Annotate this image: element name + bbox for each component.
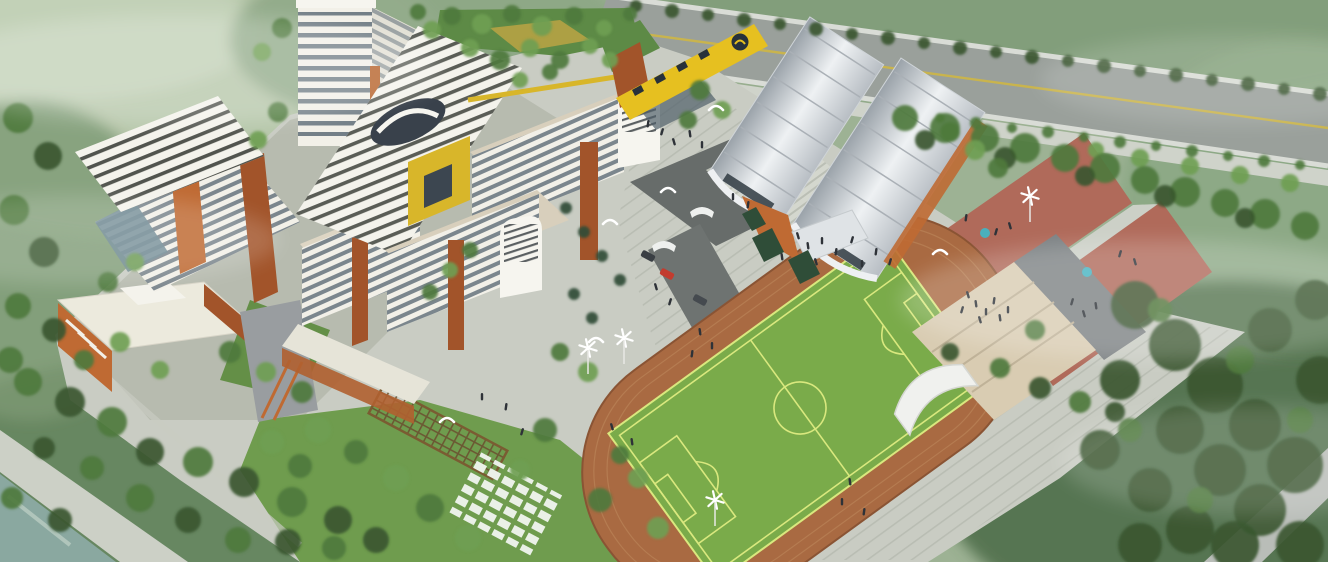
tree bbox=[1211, 189, 1239, 217]
tree bbox=[1186, 145, 1198, 157]
tree bbox=[1258, 155, 1270, 167]
fountain bbox=[980, 228, 990, 238]
tree bbox=[586, 312, 598, 324]
tree bbox=[881, 31, 895, 45]
tree bbox=[510, 460, 530, 480]
tree bbox=[568, 288, 580, 300]
tree bbox=[521, 39, 539, 57]
tree bbox=[1231, 166, 1249, 184]
person-figure bbox=[481, 393, 483, 401]
tree bbox=[14, 368, 42, 396]
tree bbox=[461, 39, 479, 57]
tree bbox=[690, 80, 710, 100]
tree bbox=[582, 38, 598, 54]
tree bbox=[1, 487, 23, 509]
tree bbox=[702, 9, 714, 21]
tree bbox=[940, 122, 960, 142]
tree bbox=[1281, 174, 1299, 192]
tree bbox=[1291, 212, 1319, 240]
tree bbox=[1075, 166, 1095, 186]
tree bbox=[410, 4, 426, 20]
tree bbox=[55, 387, 85, 417]
tree bbox=[275, 529, 301, 555]
gate-logo bbox=[732, 34, 749, 51]
tree bbox=[988, 158, 1008, 178]
tree bbox=[33, 437, 55, 459]
tree bbox=[512, 72, 528, 88]
tree bbox=[774, 18, 786, 30]
tower-parapet bbox=[296, 0, 376, 8]
person-figure bbox=[821, 237, 823, 245]
tree bbox=[809, 22, 823, 36]
scene-canvas bbox=[0, 0, 1328, 562]
tree bbox=[565, 7, 583, 25]
tree bbox=[614, 274, 626, 286]
tree bbox=[80, 456, 104, 480]
tree bbox=[611, 446, 629, 464]
slab-b-pylon bbox=[448, 240, 464, 350]
tree bbox=[1131, 149, 1149, 167]
tree bbox=[918, 37, 930, 49]
person-figure bbox=[841, 498, 843, 506]
tree bbox=[560, 202, 572, 214]
tree bbox=[1025, 50, 1039, 64]
tree bbox=[455, 525, 481, 551]
tree bbox=[503, 5, 521, 23]
tree bbox=[249, 131, 267, 149]
tree bbox=[175, 507, 201, 533]
tree bbox=[110, 332, 130, 352]
tree bbox=[442, 262, 458, 278]
tree bbox=[225, 527, 251, 553]
tree bbox=[288, 454, 312, 478]
tree bbox=[1105, 402, 1125, 422]
tree bbox=[1223, 151, 1233, 161]
tree bbox=[1250, 199, 1280, 229]
tree bbox=[1100, 360, 1140, 400]
tree bbox=[623, 7, 637, 21]
tree bbox=[551, 343, 569, 361]
tree bbox=[737, 13, 751, 27]
campus-aerial-rendering bbox=[0, 0, 1328, 562]
tree bbox=[1029, 377, 1051, 399]
tree bbox=[416, 494, 444, 522]
tree bbox=[628, 468, 648, 488]
tree bbox=[363, 527, 389, 553]
tree bbox=[260, 430, 284, 454]
tree bbox=[1131, 166, 1159, 194]
tree bbox=[344, 440, 368, 464]
tree bbox=[322, 536, 346, 560]
tree bbox=[229, 467, 259, 497]
person-figure bbox=[701, 141, 703, 149]
tree bbox=[42, 318, 66, 342]
tree bbox=[462, 242, 478, 258]
person-figure bbox=[732, 193, 734, 201]
tree bbox=[305, 417, 331, 443]
tree bbox=[1114, 136, 1126, 148]
tree bbox=[136, 438, 164, 466]
tree bbox=[1181, 157, 1199, 175]
tree bbox=[647, 517, 669, 539]
tree bbox=[1069, 391, 1091, 413]
tree bbox=[74, 350, 94, 370]
tree bbox=[1235, 208, 1255, 228]
tree bbox=[533, 418, 557, 442]
tree bbox=[953, 41, 967, 55]
tree bbox=[291, 381, 313, 403]
tree bbox=[1042, 126, 1054, 138]
tree bbox=[126, 484, 154, 512]
person-figure bbox=[711, 342, 713, 350]
slab-b-louvers bbox=[504, 224, 538, 262]
tree bbox=[602, 52, 618, 68]
tree bbox=[915, 130, 935, 150]
tree bbox=[679, 111, 697, 129]
tree bbox=[596, 20, 612, 36]
tree bbox=[490, 50, 510, 70]
tree bbox=[1151, 141, 1161, 151]
tree bbox=[532, 16, 552, 36]
tree bbox=[990, 358, 1010, 378]
person-figure bbox=[861, 260, 863, 268]
tree bbox=[892, 105, 918, 131]
tree bbox=[1007, 123, 1017, 133]
slab-c-pylon bbox=[352, 232, 368, 346]
tree bbox=[990, 46, 1002, 58]
tree bbox=[588, 488, 612, 512]
tree bbox=[846, 28, 858, 40]
tree bbox=[1051, 144, 1079, 172]
tree bbox=[1079, 132, 1089, 142]
tree bbox=[941, 343, 959, 361]
tree bbox=[5, 293, 31, 319]
tree bbox=[256, 362, 276, 382]
tree bbox=[443, 7, 461, 25]
slab-a-pylon bbox=[580, 142, 598, 260]
tree bbox=[578, 226, 590, 238]
tree bbox=[219, 341, 241, 363]
tree bbox=[423, 21, 441, 39]
tree bbox=[1154, 185, 1176, 207]
tree bbox=[324, 506, 352, 534]
tree bbox=[665, 4, 679, 18]
tree bbox=[97, 407, 127, 437]
tree bbox=[472, 14, 492, 34]
tree bbox=[34, 142, 62, 170]
tree bbox=[1295, 160, 1305, 170]
tree bbox=[965, 140, 985, 160]
tree bbox=[151, 361, 169, 379]
tree bbox=[277, 487, 307, 517]
tree bbox=[183, 447, 213, 477]
tree bbox=[422, 284, 438, 300]
tree bbox=[596, 250, 608, 262]
tree bbox=[383, 465, 409, 491]
tree bbox=[48, 508, 72, 532]
tree bbox=[542, 64, 558, 80]
